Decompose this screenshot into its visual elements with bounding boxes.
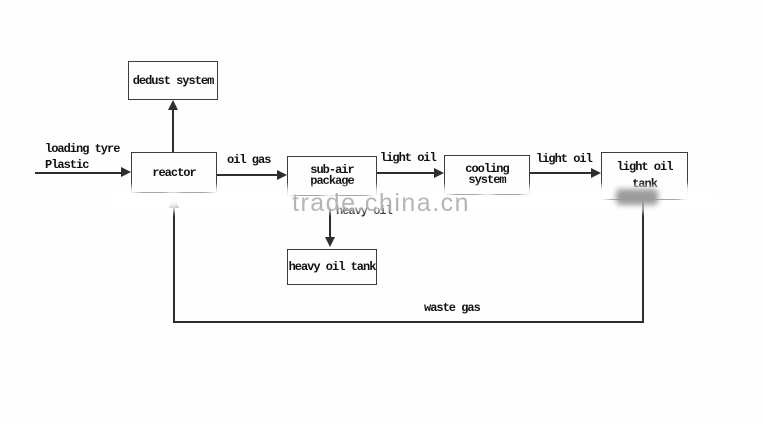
blur-spot — [704, 192, 720, 210]
blur-spot — [479, 192, 495, 210]
connector-reactor-to-dedust-line — [172, 108, 174, 152]
arrowhead-light-oil-2-icon — [591, 168, 601, 178]
arrowhead-oil-gas-icon — [277, 170, 287, 180]
arrowhead-heavy-oil-icon — [325, 237, 335, 247]
blur-spot — [208, 189, 224, 207]
arrowhead-to-dedust-icon — [168, 100, 178, 110]
flow-label-light-oil-to-cooling: light oil — [380, 151, 436, 165]
blur-spot — [593, 186, 609, 204]
node-light-oil-tank-label-line1: light oil — [617, 159, 673, 176]
node-heavy-oil-tank: heavy oil tank — [287, 249, 377, 285]
flow-label-feed-line2: Plastic — [45, 158, 88, 172]
blur-spot-gray — [616, 189, 658, 205]
connector-waste-gas-right-line — [642, 200, 644, 323]
connector-light-oil-2-line — [530, 172, 591, 174]
node-heavy-oil-tank-label: heavy oil tank — [289, 260, 376, 274]
blur-spot — [679, 186, 695, 204]
blur-spot — [123, 189, 139, 207]
node-dedust-system-label: dedust system — [133, 74, 214, 88]
flow-label-oil-gas: oil gas — [227, 153, 270, 167]
flow-label-light-oil-to-tank: light oil — [536, 152, 592, 166]
connector-waste-gas-left-line — [173, 207, 175, 323]
blur-spot — [165, 191, 181, 209]
connector-waste-gas-bottom-line — [173, 321, 644, 323]
arrowhead-light-oil-1-icon — [434, 168, 444, 178]
connector-light-oil-1-line — [377, 172, 435, 174]
flow-label-waste-gas: waste gas — [424, 301, 480, 315]
flow-label-feed-line1: loading tyre — [45, 142, 119, 156]
blur-spot — [557, 192, 573, 210]
node-dedust-system: dedust system — [128, 61, 218, 100]
watermark-text: trade.china.cn — [292, 189, 470, 218]
blur-spot — [522, 189, 538, 207]
pyrolysis-flow-diagram: dedust system reactor sub-air package co… — [0, 0, 763, 424]
connector-feed-line — [35, 172, 123, 174]
connector-oil-gas-line — [217, 174, 279, 176]
node-reactor-label: reactor — [152, 166, 195, 180]
blur-spot — [251, 192, 267, 210]
arrowhead-feed-icon — [121, 167, 131, 177]
